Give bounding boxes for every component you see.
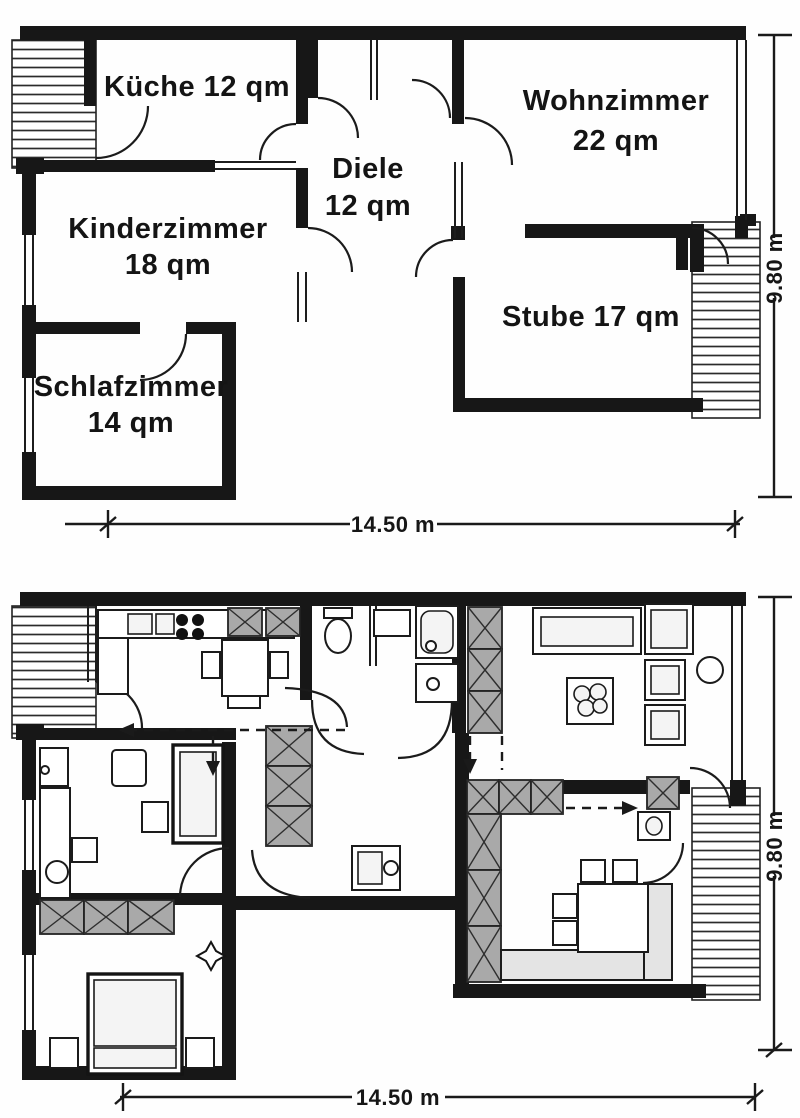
door-stube-f: [643, 843, 683, 883]
bedroom-wardrobe: [40, 900, 174, 934]
door-wc: [318, 98, 358, 138]
stube-furniture: [467, 780, 672, 982]
upper-dimension-height: 9.80 m: [758, 35, 792, 497]
armchair-child: [112, 750, 146, 786]
toilet-icon: [325, 619, 351, 653]
bath-sink-drain: [427, 678, 439, 690]
kitchen-counter-side: [98, 638, 128, 694]
room-label-wohnzimmer: Wohnzimmer: [523, 85, 710, 117]
bathtub-drain: [426, 641, 436, 651]
room-area-schlafzimmer: 14 qm: [88, 407, 174, 439]
lower-plan: 14.50 m 9.80 m: [12, 592, 792, 1111]
side-table: [697, 657, 723, 683]
door-bad: [412, 80, 450, 118]
stube-wardrobe-column: [467, 814, 501, 982]
wc-fixtures: [324, 608, 352, 653]
balcony-top-left: [12, 40, 96, 168]
upper-width-label: 14.50 m: [351, 512, 435, 537]
hall-chest: [352, 846, 400, 890]
stube-chair: [613, 860, 637, 882]
hall-wardrobe: [266, 726, 312, 846]
room-label-kueche: Küche 12 qm: [104, 71, 290, 103]
door-kueche-f: [285, 688, 347, 727]
stube-table: [578, 884, 648, 952]
kitchen-chair: [270, 652, 288, 678]
desk-chair: [46, 861, 68, 883]
lower-height-label: 9.80 m: [762, 810, 787, 882]
room-label-schlafzimmer: Schlafzimmer: [34, 371, 229, 403]
room-label-stube: Stube 17 qm: [502, 301, 680, 333]
small-table: [142, 802, 168, 832]
door-schlafzimmer-f: [252, 850, 310, 898]
upper-plan: Küche 12 qm Wohnzimmer 22 qm Diele 12 qm…: [12, 26, 792, 538]
shelf-knob: [41, 766, 49, 774]
armchair: [645, 660, 685, 700]
door-kinderzimmer: [308, 228, 352, 272]
hall-tall-cabinet: [468, 607, 502, 733]
nightstand: [186, 1038, 214, 1068]
room-area-wohnzimmer: 22 qm: [573, 125, 659, 157]
door-kueche: [260, 124, 296, 160]
door-stube: [416, 240, 453, 277]
kitchen-sink: [128, 614, 152, 634]
door-wohnzimmer: [465, 118, 512, 165]
floor-plan-scan: Küche 12 qm Wohnzimmer 22 qm Diele 12 qm…: [0, 0, 800, 1118]
washbasin: [374, 610, 410, 636]
floor-plan-drawing: Küche 12 qm Wohnzimmer 22 qm Diele 12 qm…: [0, 0, 800, 1118]
childrens-room-furniture: [40, 745, 223, 898]
kitchen-table: [222, 640, 268, 696]
double-bed: [88, 974, 182, 1074]
stube-chair: [553, 921, 577, 945]
desk-return: [72, 838, 97, 862]
upper-dimension-width: 14.50 m: [65, 510, 743, 538]
door-balcony-kueche: [96, 106, 148, 158]
room-area-diele: 12 qm: [325, 190, 411, 222]
balcony-right-furnished: [692, 788, 760, 1000]
kitchen-sink-2: [156, 614, 174, 634]
balcony-top-left-furnished: [12, 606, 96, 738]
child-bed: [173, 745, 223, 843]
armchair: [645, 705, 685, 745]
stube-chair: [581, 860, 605, 882]
sideboard: [645, 604, 693, 654]
door-kinderzimmer-f: [180, 848, 229, 897]
upper-height-label: 9.80 m: [762, 232, 787, 304]
bath-fixtures: [374, 606, 458, 702]
plant-table: [567, 678, 613, 724]
room-area-kinderzimmer: 18 qm: [125, 249, 211, 281]
kitchen-chair: [228, 696, 260, 708]
stube-chair: [553, 894, 577, 918]
kitchen-chair: [202, 652, 220, 678]
room-label-kinderzimmer: Kinderzimmer: [68, 213, 267, 245]
lower-dimension-height: 9.80 m: [758, 597, 792, 1057]
toilet-tank: [324, 608, 352, 618]
sofa: [533, 608, 641, 654]
nightstand: [50, 1038, 78, 1068]
ceiling-lamp-icon: [197, 942, 225, 970]
room-label-diele: Diele: [332, 153, 404, 185]
kitchen-furniture: [98, 608, 300, 708]
bedroom-furniture: [40, 900, 225, 1074]
lower-width-label: 14.50 m: [356, 1085, 440, 1110]
door-wc-f: [312, 700, 364, 754]
lower-dimension-width: 14.50 m: [115, 1083, 763, 1111]
door-bad-f: [398, 700, 452, 758]
stube-wardrobe-row: [467, 780, 563, 814]
